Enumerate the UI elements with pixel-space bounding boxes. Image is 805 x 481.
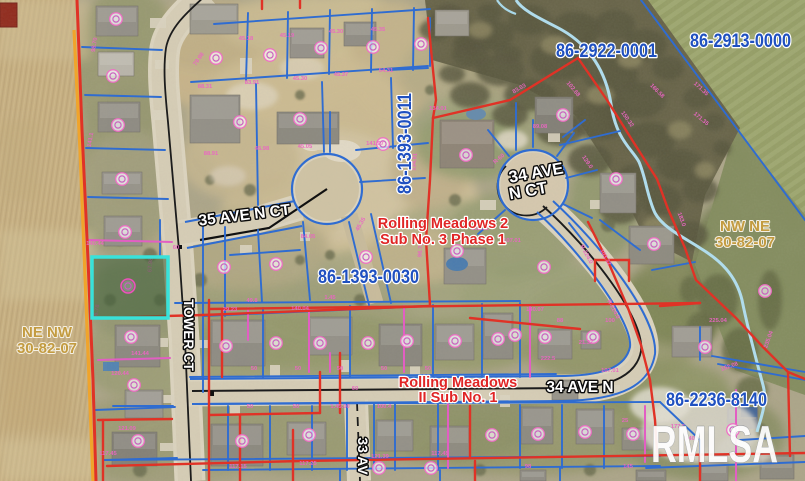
- svg-text:117.45: 117.45: [99, 451, 117, 457]
- svg-text:45.37: 45.37: [334, 72, 349, 78]
- svg-text:225.04: 225.04: [709, 318, 728, 324]
- svg-text:140.07: 140.07: [526, 307, 544, 313]
- svg-text:45.30: 45.30: [293, 76, 308, 82]
- svg-text:86-2236-8140: 86-2236-8140: [666, 390, 767, 411]
- svg-text:141.44: 141.44: [131, 351, 150, 357]
- svg-text:45.05: 45.05: [298, 144, 313, 150]
- svg-text:1.45.00: 1.45.00: [330, 404, 349, 410]
- svg-text:NE NW: NE NW: [22, 324, 73, 341]
- svg-text:140.04: 140.04: [291, 306, 310, 312]
- svg-text:83.91: 83.91: [245, 80, 260, 86]
- svg-text:TOWER CT: TOWER CT: [181, 299, 196, 371]
- svg-text:120.44: 120.44: [111, 371, 130, 377]
- svg-text:86-2913-0000: 86-2913-0000: [690, 31, 791, 52]
- svg-text:141.97: 141.97: [366, 141, 384, 147]
- svg-text:86-1393-0011: 86-1393-0011: [395, 93, 416, 194]
- svg-text:121.09: 121.09: [118, 426, 137, 432]
- svg-text:100: 100: [605, 318, 615, 324]
- svg-text:88: 88: [557, 318, 564, 324]
- svg-text:21.37: 21.37: [579, 340, 594, 346]
- svg-text:50: 50: [425, 366, 431, 372]
- svg-text:86-1393-0030: 86-1393-0030: [318, 267, 419, 288]
- svg-text:45.98: 45.98: [255, 146, 270, 152]
- svg-text:1.45: 1.45: [324, 295, 336, 301]
- svg-text:33 AV: 33 AV: [355, 437, 371, 475]
- svg-text:50: 50: [251, 366, 257, 372]
- svg-text:98: 98: [525, 464, 532, 470]
- svg-text:30-82-07: 30-82-07: [715, 234, 775, 251]
- svg-text:Rolling Meadows 2: Rolling Meadows 2: [378, 216, 509, 232]
- svg-text:84.05: 84.05: [301, 234, 316, 240]
- svg-text:145: 145: [623, 464, 633, 470]
- svg-text:34 AVE N: 34 AVE N: [546, 379, 613, 396]
- svg-text:140.44: 140.44: [86, 241, 105, 247]
- svg-text:54.31: 54.31: [379, 68, 394, 74]
- svg-text:Rolling Meadows: Rolling Meadows: [399, 375, 517, 391]
- svg-text:50: 50: [295, 366, 301, 372]
- svg-text:RMLSA: RMLSA: [651, 416, 778, 474]
- svg-text:107.01: 107.01: [503, 238, 522, 244]
- svg-text:45.30: 45.30: [329, 29, 344, 35]
- svg-text:88.31: 88.31: [198, 84, 213, 90]
- svg-text:Sub No. 3 Phase 1: Sub No. 3 Phase 1: [380, 232, 506, 248]
- svg-text:117.15: 117.15: [229, 464, 247, 470]
- svg-text:45.35: 45.35: [371, 27, 386, 33]
- svg-text:100.4: 100.4: [377, 404, 392, 410]
- svg-text:86-2922-0001: 86-2922-0001: [556, 41, 657, 62]
- svg-text:50: 50: [381, 366, 387, 372]
- svg-text:121.39: 121.39: [371, 454, 390, 460]
- svg-text:107.01: 107.01: [601, 368, 620, 374]
- svg-text:45.19: 45.19: [280, 33, 295, 39]
- svg-text:30-82-07: 30-82-07: [17, 340, 77, 357]
- svg-text:NW NE: NW NE: [720, 218, 770, 235]
- svg-text:117.25: 117.25: [299, 461, 317, 467]
- svg-text:117.45: 117.45: [431, 451, 449, 457]
- svg-text:89.08: 89.08: [533, 124, 548, 130]
- svg-text:60: 60: [173, 245, 179, 251]
- svg-text:50: 50: [247, 404, 253, 410]
- svg-text:222.5: 222.5: [541, 356, 556, 362]
- svg-text:60: 60: [352, 386, 358, 392]
- svg-text:50: 50: [337, 366, 343, 372]
- svg-text:134.01: 134.01: [429, 106, 448, 112]
- svg-text:II Sub No. 1: II Sub No. 1: [419, 390, 498, 406]
- svg-text:49.8: 49.8: [246, 298, 258, 304]
- svg-text:45.18: 45.18: [239, 36, 254, 42]
- svg-text:50: 50: [293, 404, 299, 410]
- svg-text:29.23: 29.23: [223, 307, 238, 313]
- svg-text:88.91: 88.91: [204, 151, 219, 157]
- svg-text:25: 25: [622, 418, 629, 424]
